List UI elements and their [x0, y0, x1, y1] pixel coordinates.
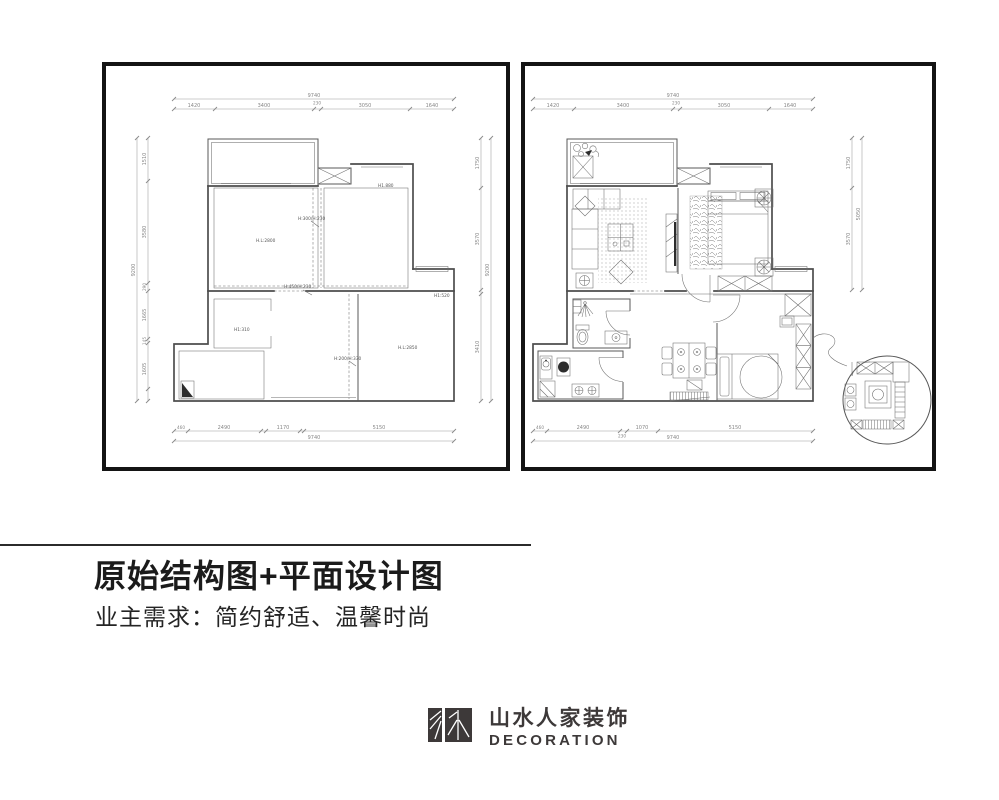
shower-head [584, 302, 587, 305]
dim-label: 1665 [142, 309, 148, 322]
dim-label: 1750 [846, 157, 852, 170]
dim-label: 1640 [426, 103, 439, 109]
dim-label: 3050 [718, 103, 731, 109]
bedroom-rug [690, 196, 722, 269]
title-divider [0, 544, 531, 546]
beam-label: H:200/H:330 [334, 356, 361, 362]
dim-label: 3410 [475, 341, 481, 354]
beam-label: H:450/H:230 [284, 284, 311, 290]
original-structure-plan-drawing: 9740 1420 3400 230 3050 1640 9200 1510 3… [106, 66, 506, 467]
dim-label: 1420 [547, 103, 560, 109]
dim-label: 3400 [617, 103, 630, 109]
left-plan-walls [174, 139, 454, 401]
pillow [720, 357, 729, 396]
height-label: H1:310 [234, 327, 250, 333]
leader-line [813, 334, 847, 366]
dim-label: 9200 [485, 264, 491, 277]
dim-label: 3400 [258, 103, 271, 109]
dim-label: 3050 [359, 103, 372, 109]
height-label: H1:520 [434, 293, 450, 299]
master-bedroom-furniture [690, 189, 773, 291]
height-label: H.L:2800 [256, 238, 276, 244]
tv [674, 222, 676, 266]
dim-label: 230 [672, 101, 680, 106]
logo-decoration-label: DECORATION [489, 733, 630, 748]
company-logo: 山水人家装饰 DECORATION [428, 708, 630, 748]
chair [706, 347, 716, 359]
page-title: 原始结构图+平面设计图 [94, 551, 444, 597]
dim-label: 5150 [373, 425, 386, 431]
left-plan-dims-bottom: 460 2490 1170 5150 9740 [172, 425, 456, 443]
balcony-plants [573, 143, 599, 178]
right-plan-dims-right: 1750 3570 5050 [846, 136, 864, 292]
dim-label: 9200 [131, 264, 137, 277]
dim-label: 9740 [667, 93, 680, 99]
dim-label: 3570 [475, 233, 481, 246]
dim-label: 9740 [308, 93, 321, 99]
vanity [605, 331, 627, 344]
dim-label: 1070 [636, 425, 649, 431]
owner-requirements: 业主需求：简约舒适、温馨时尚 [95, 598, 431, 632]
left-plan-dims-top: 9740 1420 3400 230 3050 1640 [172, 93, 456, 111]
dim-label: 5150 [729, 425, 742, 431]
chair [662, 347, 672, 359]
page: 9740 1420 3400 230 3050 1640 9200 1510 3… [0, 0, 999, 800]
right-plan-dims-top: 9740 1420 3400 230 3050 1640 [531, 93, 815, 111]
beam-label: H:300/H:230 [298, 216, 325, 222]
left-plan-dims-right: 1750 3570 3410 9200 [475, 136, 493, 403]
bottom-window [670, 392, 708, 400]
dim-label: 460 [536, 425, 544, 430]
sofa-pillow [575, 196, 595, 216]
detail-bubble [813, 334, 931, 444]
chair [706, 363, 716, 375]
dim-label: 1510 [142, 153, 148, 166]
dining-set [662, 343, 716, 400]
dim-label: 1640 [784, 103, 797, 109]
round-rug [740, 356, 782, 398]
dim-label: 3580 [142, 226, 148, 239]
height-label: H.L:2850 [398, 345, 418, 351]
logo-mark-icon [428, 708, 472, 742]
dim-label: 1605 [142, 363, 148, 376]
original-structure-panel: 9740 1420 3400 230 3050 1640 9200 1510 3… [102, 62, 510, 471]
dim-label: 145 [142, 337, 147, 345]
left-plan-dims-left: 9200 1510 3580 290 1665 145 1605 [131, 136, 150, 403]
left-plan-labels: H1.880 H.L:2800 H:300/H:230 H:450/H:230 … [234, 183, 450, 362]
dim-label: 290 [142, 283, 147, 291]
bathroom-fixtures [573, 300, 627, 345]
dim-label: 3570 [846, 233, 852, 246]
right-plan-dims-bottom: 460 2490 230 1070 5150 9740 [531, 425, 815, 443]
dim-label: 230 [618, 434, 626, 439]
second-bedroom-furniture [717, 294, 811, 399]
design-plan-drawing: 9740 1420 3400 230 3050 1640 1750 3570 5… [525, 66, 932, 467]
logo-company-name: 山水人家装饰 [489, 708, 630, 729]
door-swings [599, 274, 740, 382]
living-room-furniture [572, 189, 677, 288]
basin [558, 362, 569, 373]
dim-label: 1170 [277, 425, 290, 431]
dim-label: 1420 [188, 103, 201, 109]
dim-label: 2490 [577, 425, 590, 431]
dim-label: 9740 [308, 435, 321, 441]
height-label: H1.880 [378, 183, 394, 189]
kitchen-fixtures [540, 356, 599, 397]
dim-label: 230 [313, 101, 321, 106]
dim-label: 9740 [667, 435, 680, 441]
dim-label: 460 [177, 425, 185, 430]
chair [662, 363, 672, 375]
dim-label: 5050 [856, 208, 862, 221]
dim-label: 1750 [475, 157, 481, 170]
dim-label: 2490 [218, 425, 231, 431]
design-plan-panel: 9740 1420 3400 230 3050 1640 1750 3570 5… [521, 62, 936, 471]
